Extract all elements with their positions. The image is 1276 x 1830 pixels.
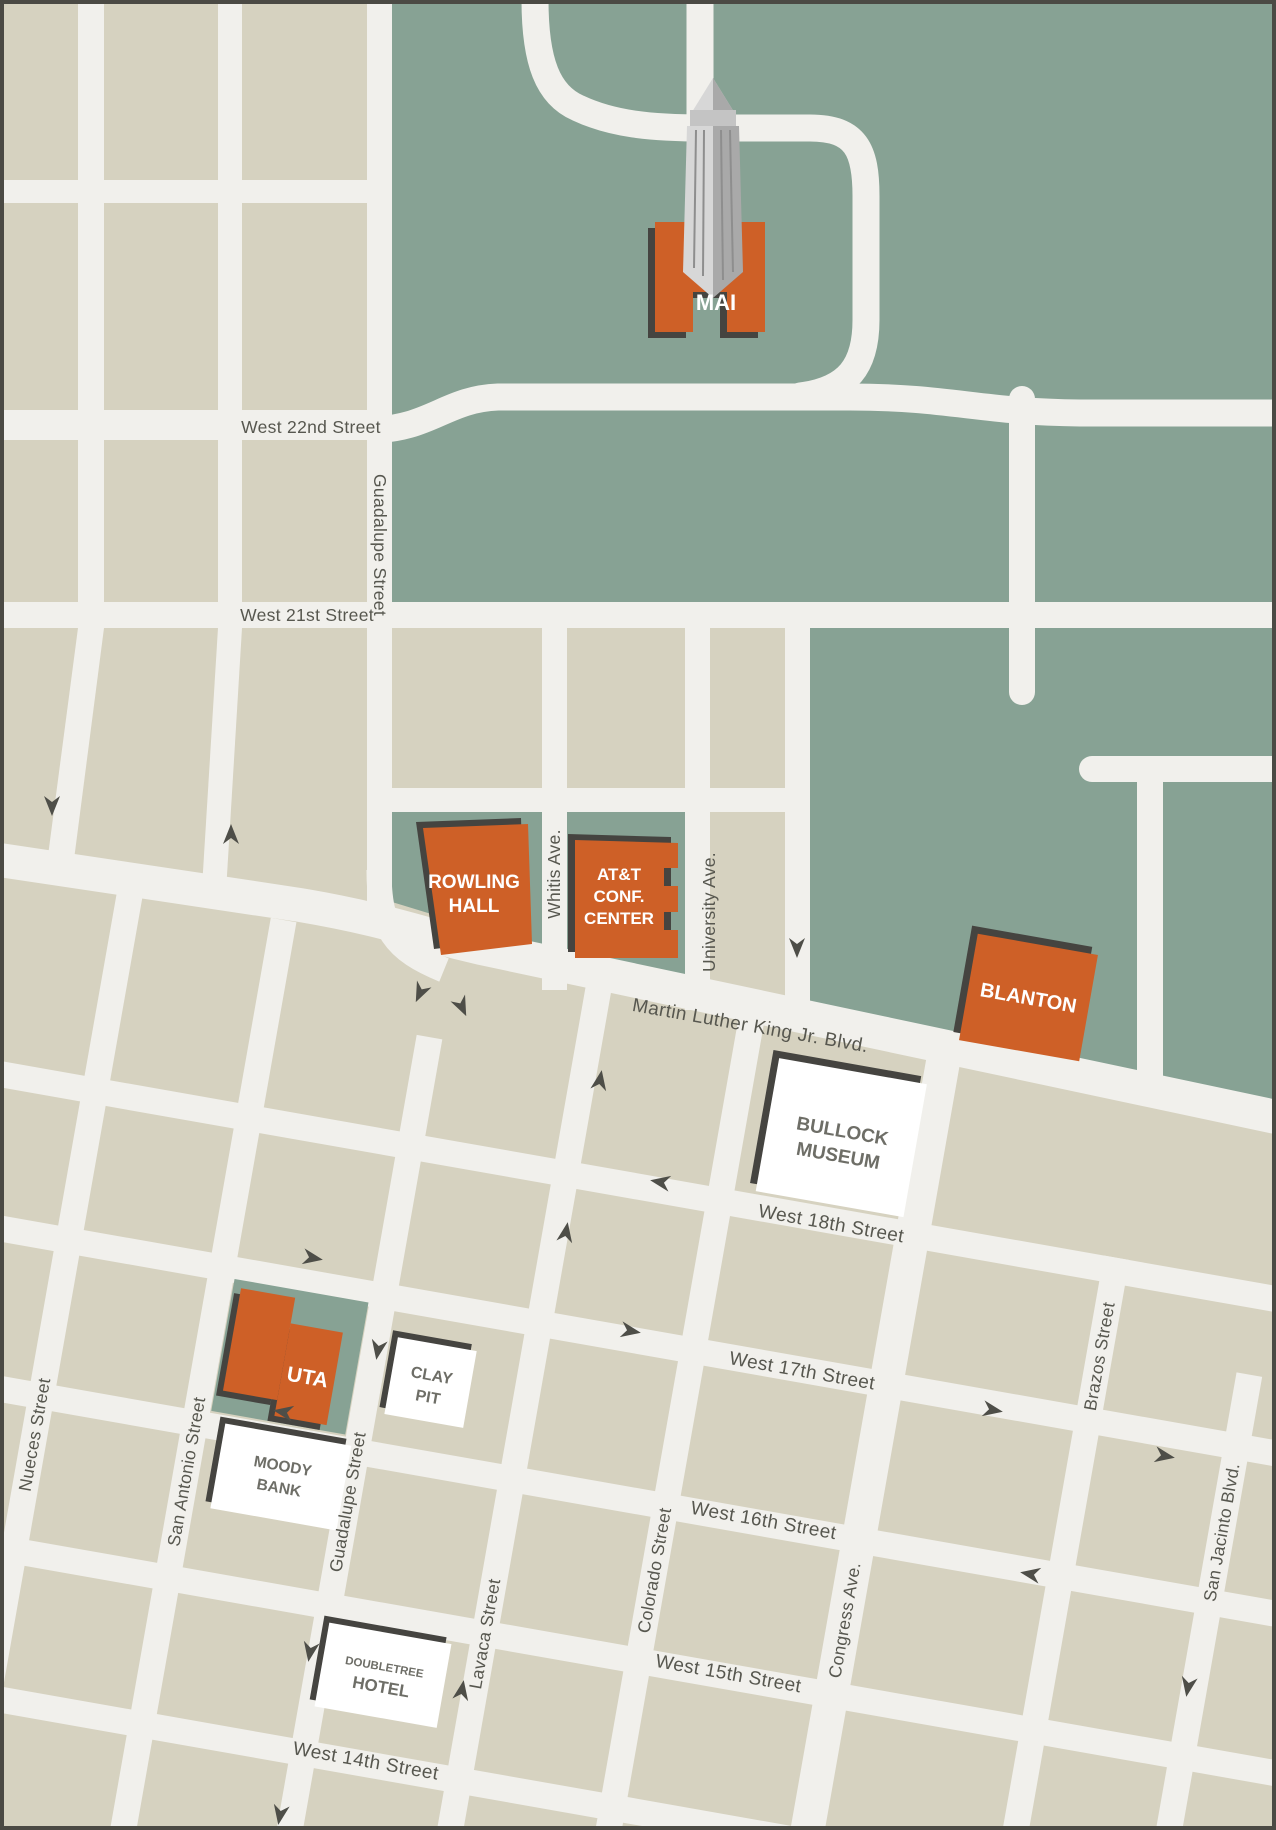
street-unnamed-horizontal	[0, 180, 367, 203]
whitis-ave-street	[542, 628, 567, 990]
att-label-3: CENTER	[584, 909, 654, 928]
att-conf-center-group: AT&T CONF. CENTER	[568, 834, 678, 958]
campus-map: UTA BULLOCK MUSEUM CLAY PIT MOODY BANK D…	[0, 0, 1276, 1830]
west-21st-label: West 21st Street	[240, 605, 374, 625]
att-label-1: AT&T	[597, 865, 642, 884]
whitis-ave-label: Whitis Ave.	[544, 829, 564, 919]
rowling-label-2: HALL	[449, 896, 500, 917]
campus-mid-street	[392, 788, 810, 812]
ut-tower-icon	[683, 78, 743, 298]
west-21st-street	[0, 602, 1276, 628]
rowling-label-1: ROWLING	[428, 872, 520, 893]
street-unnamed-vertical	[78, 0, 104, 618]
street-unnamed-vertical	[218, 0, 242, 618]
university-ave-label: University Ave.	[699, 852, 719, 972]
street-unnamed-vertical	[785, 628, 810, 1020]
mai-label: MAI	[696, 290, 736, 315]
att-label-2: CONF.	[594, 887, 645, 906]
west-22nd-label: West 22nd Street	[241, 417, 381, 437]
city-block	[710, 812, 785, 1002]
city-block	[392, 628, 785, 790]
rowling-hall-group: ROWLING HALL	[416, 818, 532, 955]
blanton-group: BLANTON	[952, 926, 1099, 1062]
guadalupe-street-campus	[367, 0, 392, 905]
guadalupe-campus-label: Guadalupe Street	[370, 474, 390, 616]
